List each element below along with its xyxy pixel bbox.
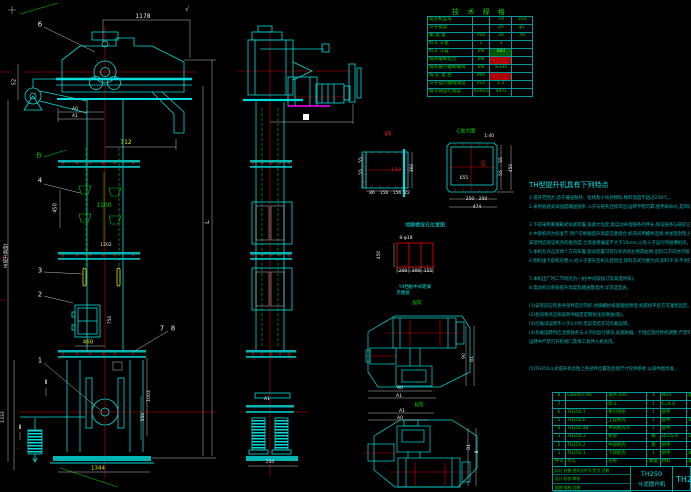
table-row: 2TH250.2中部机壳套部件 [553, 442, 691, 450]
title-block-revision-area: 标记 处数 更改文件号 签字 日期 设计 校核 审核 描图 描校 日期 [553, 467, 631, 492]
plan-view-upper-structure [366, 316, 470, 387]
note-line: 8.电动机功率按提升高度及输送量选用,详见选型表。 [529, 284, 690, 293]
table-row: 4TH250.4B中间机壳节1部件 [553, 425, 691, 433]
hanger-slots [83, 268, 120, 286]
table-row: 8GB5067-85链条 2004M24配套 [553, 393, 691, 401]
detail-caption: 地脚螺栓孔位置图 [405, 224, 445, 229]
dim-label: B1 [468, 444, 473, 450]
dim-label: 550 [266, 461, 275, 466]
note-line: (4)负载运转时应注意链条与斗子的运行情况,发现跑偏、卡阻应及时停机调整,严禁带… [529, 329, 690, 338]
bom-table: 8GB5067-85链条 2004M24配套7料斗1L=9.06TH250.7牵… [552, 392, 691, 466]
dim-label: 450 [54, 203, 59, 213]
dim-label: 250 [479, 198, 488, 203]
dim-label: 750 [109, 316, 114, 325]
notes-block: TH型提升机具有下列特点 1.提升范围大,适于输送粉状、粒状及小块状物料,物料温… [529, 180, 690, 390]
dim-label: A0 [397, 417, 403, 422]
dim-label: 360 [411, 164, 416, 173]
white-marker [303, 114, 309, 120]
table-row: 料斗 斗容kN480 [428, 49, 533, 57]
dim-label: H(提升高度) [5, 244, 10, 269]
balloon-8: 8 [171, 326, 175, 333]
dim-label: 1333 [2, 411, 7, 422]
note-line: 运转中严禁打开检视门及将工具伸入机壳内。 [529, 338, 690, 347]
table-row: 斗子宽度25φ1 [428, 25, 533, 33]
balloon-7: 7 [160, 326, 164, 333]
note-line [529, 347, 690, 356]
dim-label: 450 [510, 164, 515, 173]
table-row: 料斗 斗宽13 [428, 41, 533, 49]
notes-lines: 1.提升范围大,适于输送粉状、粒状及小块状物料,物料温度不超过250℃。2.采用… [529, 194, 690, 374]
revision-labels: 标记 处数 更改文件号 签字 日期 [553, 467, 630, 475]
dim-label: 450 [378, 251, 383, 260]
dim-label: B1 [471, 356, 476, 362]
dim-label: L [204, 220, 211, 224]
dim-label: A1 [264, 398, 270, 403]
dim-label: 460 [83, 340, 94, 346]
balloon-3: 3 [38, 268, 42, 275]
note-line [529, 356, 690, 365]
anchor-bolt-grid [397, 243, 433, 267]
section-mark: Ⅱ [19, 425, 22, 431]
dim-label: A1 [399, 410, 405, 415]
note-line: 7.本机出厂时二节机壳为一组(中间段按订货高度供货)。 [529, 275, 690, 284]
dim-label: 55 [360, 169, 365, 175]
section-mark: Ⅱ [45, 380, 48, 386]
dim-label: 55 [360, 157, 365, 163]
surface-finish-mark: √ [185, 7, 189, 13]
dim-label: Y4挡板中间距离 [399, 286, 432, 291]
dim-label: 1100 [96, 203, 111, 209]
dim-label: 1:40 [484, 135, 494, 140]
product-model: TH250 [631, 470, 672, 478]
table-row: 6TH250.7牵引链条1部件 [553, 409, 691, 417]
plan-view-lower-structure [368, 420, 477, 487]
table-row: 斗子运行曲线速度m/s1.2 [428, 81, 533, 89]
chain-and-buckets [20, 3, 278, 487]
table-row: 链 轮 直 径MM [428, 73, 533, 81]
dim-label: 1003 [148, 390, 153, 401]
note-line: (2)各润滑点应按说明书规定定期加注润滑油(脂)。 [529, 311, 690, 320]
title-block: 标记 处数 更改文件号 签字 日期 设计 校核 审核 描图 描校 日期 TH25… [552, 466, 691, 491]
table-row: 畚斗链运行速度m/min44.0 [428, 89, 533, 97]
view-label-b-upper: B向 [412, 301, 421, 307]
dim-label: 1:10 [391, 169, 401, 174]
balloon-1: 1 [38, 358, 42, 365]
view-letter-b: B [37, 153, 42, 160]
dim-label: 1178 [135, 14, 150, 20]
dim-label: 65 [483, 160, 488, 166]
note-line [529, 266, 690, 275]
table-row: 输 送 量mm3040 [428, 33, 533, 41]
dim-label: 300 [412, 270, 421, 275]
view-label-b-lower: B向 [414, 403, 423, 409]
table-row: 3TH250.3机架根Q235-A200 [553, 433, 691, 441]
note-line: 3.下部采用重锤箱式张紧装置,张紧力恒定,能自动补偿链条的伸长,保证链条与链轮正… [529, 221, 690, 230]
title-block-name-area: TH250 斗式提升机 [631, 467, 673, 492]
dim-label: 155 [424, 270, 433, 275]
table-row: 7料斗1L=9.0 [553, 401, 691, 409]
cad-canvas: √1178652A0A1712B44501100120232750784601Ⅱ… [0, 0, 691, 491]
table-row: 5TH250.6上段机壳1部件635 [553, 417, 691, 425]
note-line [529, 293, 690, 302]
note-line: 1.提升范围大,适于输送粉状、粒状及小块状物料,物料温度不超过250℃。 [529, 194, 690, 203]
note-line: (3)空载试运转不少于2小时,无异常后方可负载运转。 [529, 320, 690, 329]
dim-label: A1 [396, 395, 402, 400]
dim-label: A0 [397, 387, 403, 392]
product-name: 斗式提升机 [631, 480, 672, 488]
balloon-6: 6 [38, 22, 42, 29]
dim-label: 550 [142, 413, 147, 422]
note-line: (1)安装前应检查各部件是否完好,地脚螺栓按基础图预埋,机座找平后方可灌浆固定。 [529, 302, 690, 311]
dim-label: 22 [404, 192, 410, 197]
drawing-number: TH250 [673, 467, 691, 492]
dim-label: 52 [13, 79, 18, 85]
dim-label: 712 [120, 140, 131, 146]
note-line: 6.物料由下部机壳喂入,经斗子提升至机头后卸出,卸料方式为重力式,卸料干净,不易… [529, 257, 690, 266]
dim-label: 1202 [100, 244, 111, 249]
dim-label: 90 [463, 353, 468, 359]
table-row: 1TH250.1下部机壳1部件850 [553, 450, 691, 458]
dim-label: 55 [500, 157, 505, 163]
bom-table-wrap: 8GB5067-85链条 2004M24配套7料斗1L=9.06TH250.7牵… [552, 392, 691, 466]
note-line [529, 212, 690, 221]
note-line: 5.本机允许正反两个方向布置,驱动装置可装在机壳的左侧或右侧,出料口方向亦可按需… [529, 248, 690, 257]
signature-labels: 设计 校核 审核 [553, 475, 630, 483]
dim-label: 655 [460, 177, 469, 182]
note-line: (5)TH250斗式提升机总图上各部件位置及连接尺寸仅供参考,以部件图为准。 [529, 365, 690, 374]
dim-label: 8-φ18 [399, 237, 412, 242]
balloon-4: 4 [38, 178, 42, 185]
view-label-i: Ⅰ向 [384, 132, 391, 138]
notes-title: TH型提升机具有下列特点 [529, 180, 690, 190]
note-line: 2.采用板链式高强度输送链条,斗子与链条连接牢固,运转平稳可靠,使用寿命长,是目… [529, 203, 690, 212]
bolt-marks [61, 143, 497, 486]
view-label-c: C放大图 [457, 130, 476, 135]
dim-label: A0 [72, 108, 78, 113]
spec-table: 提升机型号TH250斗子宽度25φ1输 送 量mm3040料斗 斗宽13料斗 斗… [427, 16, 533, 97]
dim-label: 见图纸 [396, 292, 410, 297]
dim-label: 474 [473, 206, 482, 211]
dim-label: 86 [369, 192, 375, 197]
note-line: 安装时应保证机壳的垂直度,全高垂直偏差不大于10mm,以免斗子运行时碰撞机壳。 [529, 239, 690, 248]
dim-label: 156 [380, 192, 389, 197]
dim-label: 156 [393, 192, 402, 197]
dim-label: B [476, 450, 481, 453]
dim-label: 200 [399, 270, 408, 275]
dim-label: 55 [500, 170, 505, 176]
table-row: 提升机型号TH250 [428, 17, 533, 25]
detail-c-structure [447, 143, 497, 192]
dim-label: A1 [72, 115, 78, 120]
balloon-2: 2 [38, 292, 42, 299]
dim-label: 250 [466, 198, 475, 203]
dim-label: 1344 [91, 466, 105, 472]
note-line: 4.中部机壳为标准节,用户可根据提升高度任意组合,机壳间用螺栓连接,并加密封垫,… [529, 230, 690, 239]
table-row: 链条破断拉力kN [428, 57, 533, 65]
table-row: 件号代号名称数量材料备注 [553, 458, 691, 466]
table-row: 链条最小破断载荷kN≥335 [428, 65, 533, 73]
flange-bands [53, 160, 298, 461]
